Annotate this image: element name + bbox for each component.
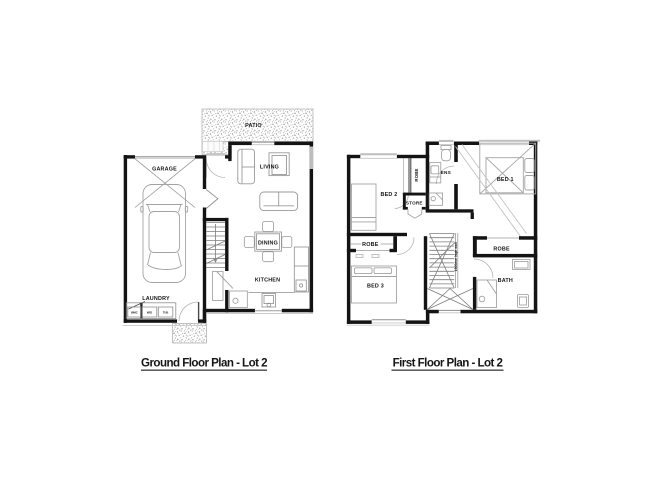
svg-text:ROBE: ROBE	[362, 242, 379, 248]
svg-text:DINING: DINING	[258, 240, 278, 246]
svg-text:ROBE: ROBE	[414, 168, 419, 181]
svg-text:LIVING: LIVING	[260, 165, 279, 171]
svg-text:BATH: BATH	[498, 278, 513, 284]
svg-text:ENS: ENS	[441, 170, 451, 175]
svg-text:BED 2: BED 2	[381, 192, 398, 198]
svg-text:STORE: STORE	[406, 201, 423, 206]
svg-text:First Floor Plan - Lot 2: First Floor Plan - Lot 2	[393, 357, 503, 370]
svg-text:LAUNDRY: LAUNDRY	[142, 296, 170, 302]
svg-text:GARAGE: GARAGE	[152, 167, 177, 173]
svg-text:BED 3: BED 3	[367, 284, 384, 290]
svg-text:TUB: TUB	[163, 311, 169, 315]
svg-text:PATIO: PATIO	[245, 123, 262, 129]
svg-text:Ground Floor Plan - Lot 2: Ground Floor Plan - Lot 2	[141, 357, 267, 370]
svg-text:1800mm high wall: 1800mm high wall	[454, 242, 458, 271]
svg-text:W/D: W/D	[147, 311, 152, 315]
svg-text:KITCHEN: KITCHEN	[255, 277, 280, 283]
svg-text:BED 1: BED 1	[497, 177, 514, 183]
svg-text:WMC: WMC	[131, 311, 138, 315]
svg-text:ROBE: ROBE	[493, 246, 510, 252]
